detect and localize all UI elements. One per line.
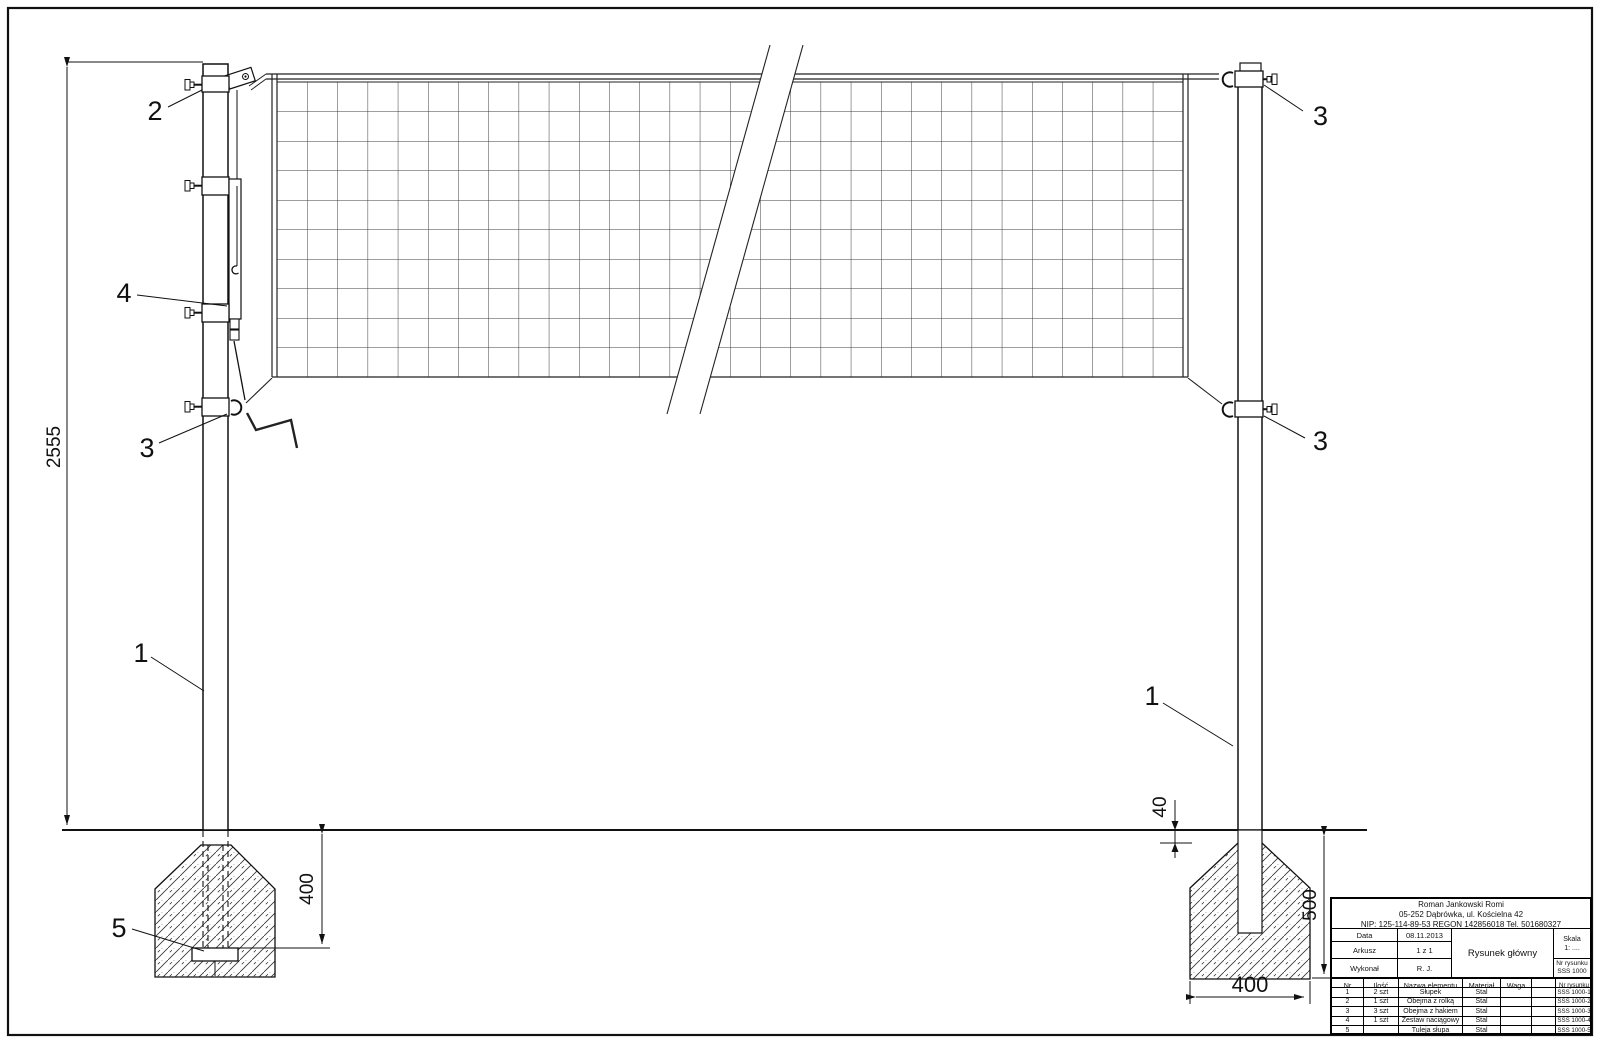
cell: Obejma z hakiem	[1399, 1006, 1463, 1015]
cell	[1532, 1025, 1556, 1034]
cell: Słupek	[1399, 987, 1463, 996]
cell: Stal	[1463, 997, 1501, 1006]
net-tie-cord-left	[246, 378, 272, 403]
hook-clamp-bottom-right	[1223, 401, 1277, 417]
hook-icon	[231, 400, 241, 414]
company-name: Roman Jankowski Romi	[1332, 900, 1590, 910]
field-skala: Skala 1: ....	[1554, 929, 1590, 959]
cell: 1	[1332, 987, 1364, 996]
net-tie-cord-right	[1188, 378, 1222, 404]
tension-clamp-lower	[185, 304, 229, 322]
cell	[1501, 997, 1532, 1006]
cell	[1364, 1025, 1399, 1034]
callout-1-right: 1	[1144, 681, 1159, 711]
dim-40: 40	[1150, 796, 1171, 817]
callout-3-top-right: 3	[1313, 101, 1328, 131]
field-nr-rysunku: Nr rysunku SSS 1000	[1554, 959, 1590, 978]
dim-400-left: 400	[297, 873, 318, 905]
callout-2: 2	[147, 96, 162, 126]
callout-3-bottom-right: 3	[1313, 426, 1328, 456]
cell: Stal	[1463, 1016, 1501, 1025]
cell: 3	[1332, 1006, 1364, 1015]
dimension-total-height: 2555	[44, 62, 203, 825]
skala-label: Skala	[1563, 935, 1581, 944]
cell	[1501, 1016, 1532, 1025]
cell	[1501, 987, 1532, 996]
hook-clamp-top-right	[1223, 71, 1277, 87]
company-address: 05-252 Dąbrówka, ul. Kościelna 42	[1332, 910, 1590, 920]
dimension-ground-offset: 40	[1150, 796, 1192, 858]
cell	[1501, 1006, 1532, 1015]
title-block: Roman Jankowski Romi 05-252 Dąbrówka, ul…	[1330, 897, 1592, 1035]
cell: SSS 1000-2	[1556, 997, 1592, 1006]
cell	[1532, 997, 1556, 1006]
field-data-label: Data	[1332, 929, 1398, 942]
field-wykonal-label: Wykonał	[1332, 959, 1398, 978]
field-data-value: 08.11.2013	[1398, 929, 1452, 942]
nr-label: Nr rysunku	[1556, 960, 1587, 968]
cell: 4	[1332, 1016, 1364, 1025]
cell: Stal	[1463, 1025, 1501, 1034]
parts-table: Nr Ilość Nazwa elementu Materiał Waga Nr…	[1332, 978, 1590, 1034]
hook-icon	[1223, 72, 1233, 86]
cell	[1532, 987, 1556, 996]
cell: Stal	[1463, 1006, 1501, 1015]
cell: Tuleja słupa	[1399, 1025, 1463, 1034]
cell: SSS 1000-4	[1556, 1016, 1592, 1025]
cell: SSS 1000-5	[1556, 1025, 1592, 1034]
cell	[1532, 1016, 1556, 1025]
technical-drawing: 2555 400 40 500 400 2 4 3 1 5 3	[0, 0, 1600, 1043]
skala-value: 1: ....	[1564, 944, 1580, 953]
cell: Obejma z rolką	[1399, 997, 1463, 1006]
callout-5: 5	[111, 913, 126, 943]
drawing-sheet: 2555 400 40 500 400 2 4 3 1 5 3	[0, 0, 1600, 1043]
company-header: Roman Jankowski Romi 05-252 Dąbrówka, ul…	[1332, 899, 1590, 929]
field-arkusz-value: 1 z 1	[1398, 942, 1452, 959]
dim-400-bottom: 400	[1232, 972, 1269, 997]
field-wykonal-value: R. J.	[1398, 959, 1452, 978]
dim-500: 500	[1300, 889, 1321, 921]
tension-crank	[247, 413, 297, 448]
cell: 1 szt	[1364, 997, 1399, 1006]
callout-1-left: 1	[133, 638, 148, 668]
cell	[1532, 1006, 1556, 1015]
cell: 2 szt	[1364, 987, 1399, 996]
cell: SSS 1000-3	[1556, 1006, 1592, 1015]
cell: SSS 1000-1	[1556, 987, 1592, 996]
callout-3-left: 3	[139, 433, 154, 463]
cell	[1501, 1025, 1532, 1034]
hook-icon	[1223, 402, 1233, 416]
tension-clamp-upper	[185, 177, 229, 195]
tension-set	[229, 90, 245, 400]
callout-4: 4	[116, 278, 131, 308]
cell: 2	[1332, 997, 1364, 1006]
nr-value: SSS 1000	[1557, 968, 1586, 976]
drawing-title: Rysunek główny	[1452, 929, 1554, 978]
cell: 5	[1332, 1025, 1364, 1034]
hook-clamp-left	[185, 398, 241, 416]
cell: 1 szt	[1364, 1016, 1399, 1025]
field-arkusz-label: Arkusz	[1332, 942, 1398, 959]
dim-2555: 2555	[44, 426, 65, 468]
right-post	[1238, 63, 1262, 933]
cell: Stal	[1463, 987, 1501, 996]
cell: Zestaw naciągowy	[1399, 1016, 1463, 1025]
title-block-fields: Data 08.11.2013 Arkusz 1 z 1 Wykonał R. …	[1332, 929, 1590, 978]
cell: 3 szt	[1364, 1006, 1399, 1015]
